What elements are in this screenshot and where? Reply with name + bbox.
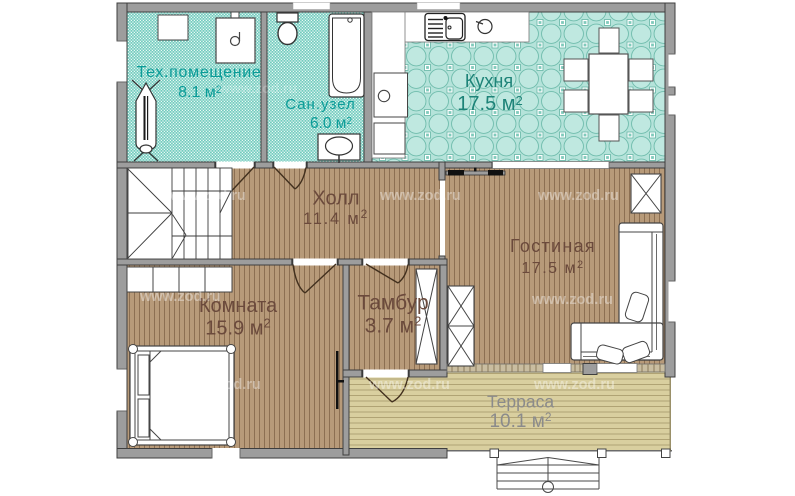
svg-text:10.1 м2: 10.1 м2 bbox=[489, 410, 551, 432]
svg-text:www.zod.ru: www.zod.ru bbox=[218, 80, 297, 96]
svg-text:Кухня: Кухня bbox=[465, 71, 513, 91]
svg-text:Терраса: Терраса bbox=[487, 392, 554, 412]
svg-text:8.1 м2: 8.1 м2 bbox=[178, 84, 222, 101]
svg-text:www.zod.ru: www.zod.ru bbox=[139, 289, 221, 305]
svg-text:www.zod.ru: www.zod.ru bbox=[179, 377, 261, 393]
svg-text:Холл: Холл bbox=[312, 188, 359, 210]
svg-text:www.zod.ru: www.zod.ru bbox=[164, 188, 246, 204]
svg-text:Гостиная: Гостиная bbox=[510, 236, 596, 256]
svg-text:Тамбур: Тамбур bbox=[357, 292, 428, 315]
svg-text:www.zod.ru: www.zod.ru bbox=[379, 188, 461, 204]
svg-text:Тех.помещение: Тех.помещение bbox=[137, 64, 262, 81]
svg-text:Сан.узел: Сан.узел bbox=[285, 96, 356, 113]
svg-text:www.zod.ru: www.zod.ru bbox=[368, 377, 450, 393]
svg-text:11.4 м2: 11.4 м2 bbox=[303, 207, 369, 228]
svg-text:17.5 м2: 17.5 м2 bbox=[457, 93, 522, 115]
svg-text:www.zod.ru: www.zod.ru bbox=[533, 377, 615, 393]
svg-text:3.7 м2: 3.7 м2 bbox=[365, 314, 422, 338]
svg-text:15.9 м2: 15.9 м2 bbox=[205, 316, 270, 340]
svg-text:www.zod.ru: www.zod.ru bbox=[531, 292, 613, 308]
svg-text:17.5 м2: 17.5 м2 bbox=[521, 259, 584, 277]
svg-text:6.0 м2: 6.0 м2 bbox=[310, 115, 353, 132]
svg-text:www.zod.ru: www.zod.ru bbox=[537, 188, 619, 204]
